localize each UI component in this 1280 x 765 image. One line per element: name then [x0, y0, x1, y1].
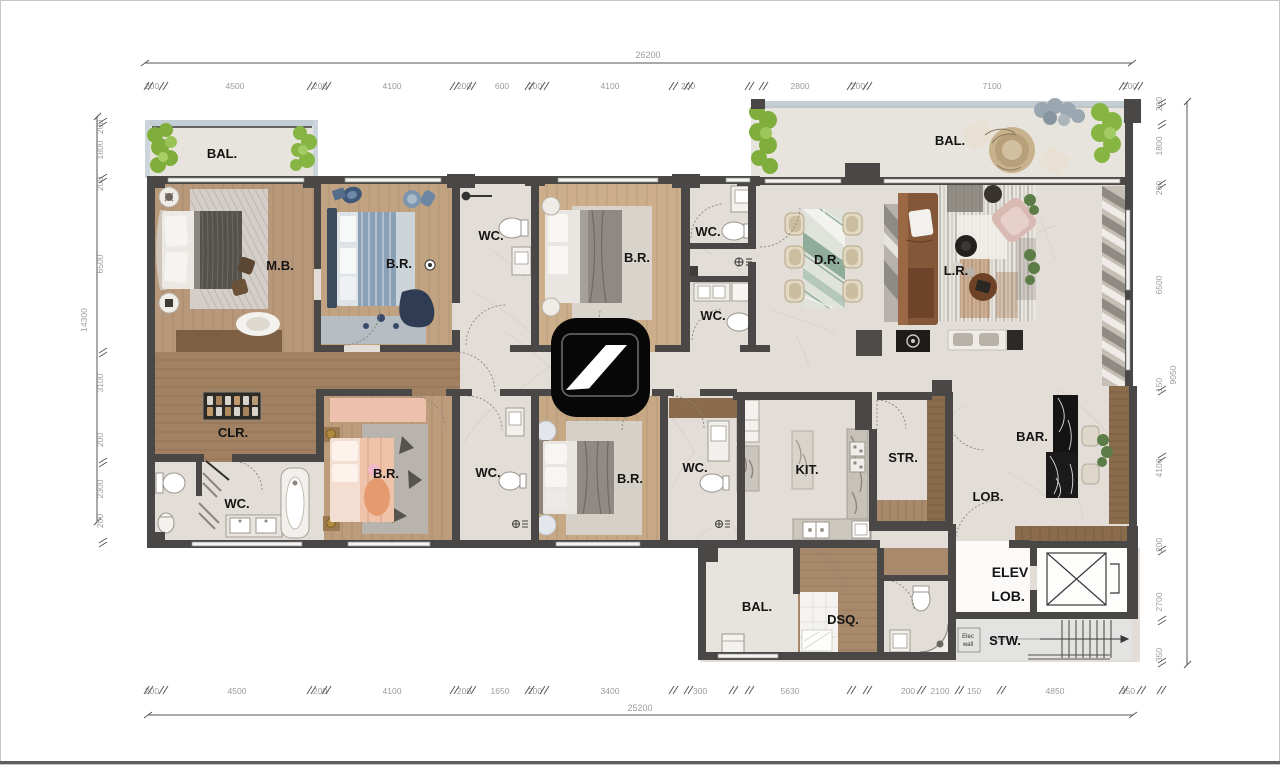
svg-text:B.R.: B.R.	[386, 256, 412, 271]
svg-text:4850: 4850	[1046, 686, 1065, 696]
svg-text:9050: 9050	[1168, 365, 1178, 384]
svg-text:2800: 2800	[791, 81, 810, 91]
svg-text:BAR.: BAR.	[1016, 429, 1048, 444]
svg-text:D.R.: D.R.	[814, 252, 840, 267]
svg-text:2300: 2300	[95, 479, 105, 498]
svg-text:1650: 1650	[491, 686, 510, 696]
svg-text:1800: 1800	[1154, 136, 1164, 155]
svg-text:DSQ.: DSQ.	[827, 612, 859, 627]
svg-text:7100: 7100	[983, 81, 1002, 91]
svg-text:6500: 6500	[1154, 275, 1164, 294]
svg-text:ELEV: ELEV	[992, 564, 1029, 580]
svg-text:3400: 3400	[601, 686, 620, 696]
svg-text:WC.: WC.	[224, 496, 249, 511]
svg-text:4500: 4500	[226, 81, 245, 91]
svg-text:KIT.: KIT.	[795, 462, 818, 477]
svg-text:Elec: Elec	[962, 634, 974, 640]
svg-text:WC.: WC.	[695, 224, 720, 239]
svg-text:5630: 5630	[781, 686, 800, 696]
svg-text:200: 200	[528, 686, 542, 696]
svg-text:4100: 4100	[601, 81, 620, 91]
svg-text:2700: 2700	[1154, 592, 1164, 611]
svg-text:150: 150	[967, 686, 981, 696]
svg-text:200: 200	[313, 81, 327, 91]
svg-text:300: 300	[693, 686, 707, 696]
svg-text:200: 200	[901, 686, 915, 696]
svg-text:6500: 6500	[95, 254, 105, 273]
svg-text:L.R.: L.R.	[944, 263, 969, 278]
svg-text:BAL.: BAL.	[742, 599, 772, 614]
svg-text:26200: 26200	[635, 50, 660, 60]
svg-text:BAL.: BAL.	[935, 133, 965, 148]
svg-text:WC.: WC.	[478, 228, 503, 243]
svg-text:LOB.: LOB.	[991, 588, 1024, 604]
svg-text:2100: 2100	[931, 686, 950, 696]
svg-text:B.R.: B.R.	[617, 471, 643, 486]
svg-text:600: 600	[495, 81, 509, 91]
svg-text:LOB.: LOB.	[972, 489, 1003, 504]
svg-text:M.B.: M.B.	[266, 258, 293, 273]
svg-text:25200: 25200	[627, 703, 652, 713]
svg-text:B.R.: B.R.	[624, 250, 650, 265]
svg-text:14300: 14300	[79, 308, 89, 332]
svg-text:B.R.: B.R.	[373, 466, 399, 481]
svg-text:wall: wall	[962, 642, 973, 648]
svg-text:1800: 1800	[95, 140, 105, 159]
svg-text:4100: 4100	[383, 81, 402, 91]
svg-text:WC.: WC.	[475, 465, 500, 480]
svg-text:STR.: STR.	[888, 450, 918, 465]
svg-text:4500: 4500	[228, 686, 247, 696]
svg-text:CLR.: CLR.	[218, 425, 248, 440]
svg-text:3100: 3100	[95, 373, 105, 392]
svg-text:4100: 4100	[383, 686, 402, 696]
svg-text:200: 200	[95, 433, 105, 447]
svg-text:200: 200	[95, 514, 105, 528]
svg-text:BAL.: BAL.	[207, 146, 237, 161]
svg-text:WC.: WC.	[682, 460, 707, 475]
svg-text:STW.: STW.	[989, 633, 1021, 648]
